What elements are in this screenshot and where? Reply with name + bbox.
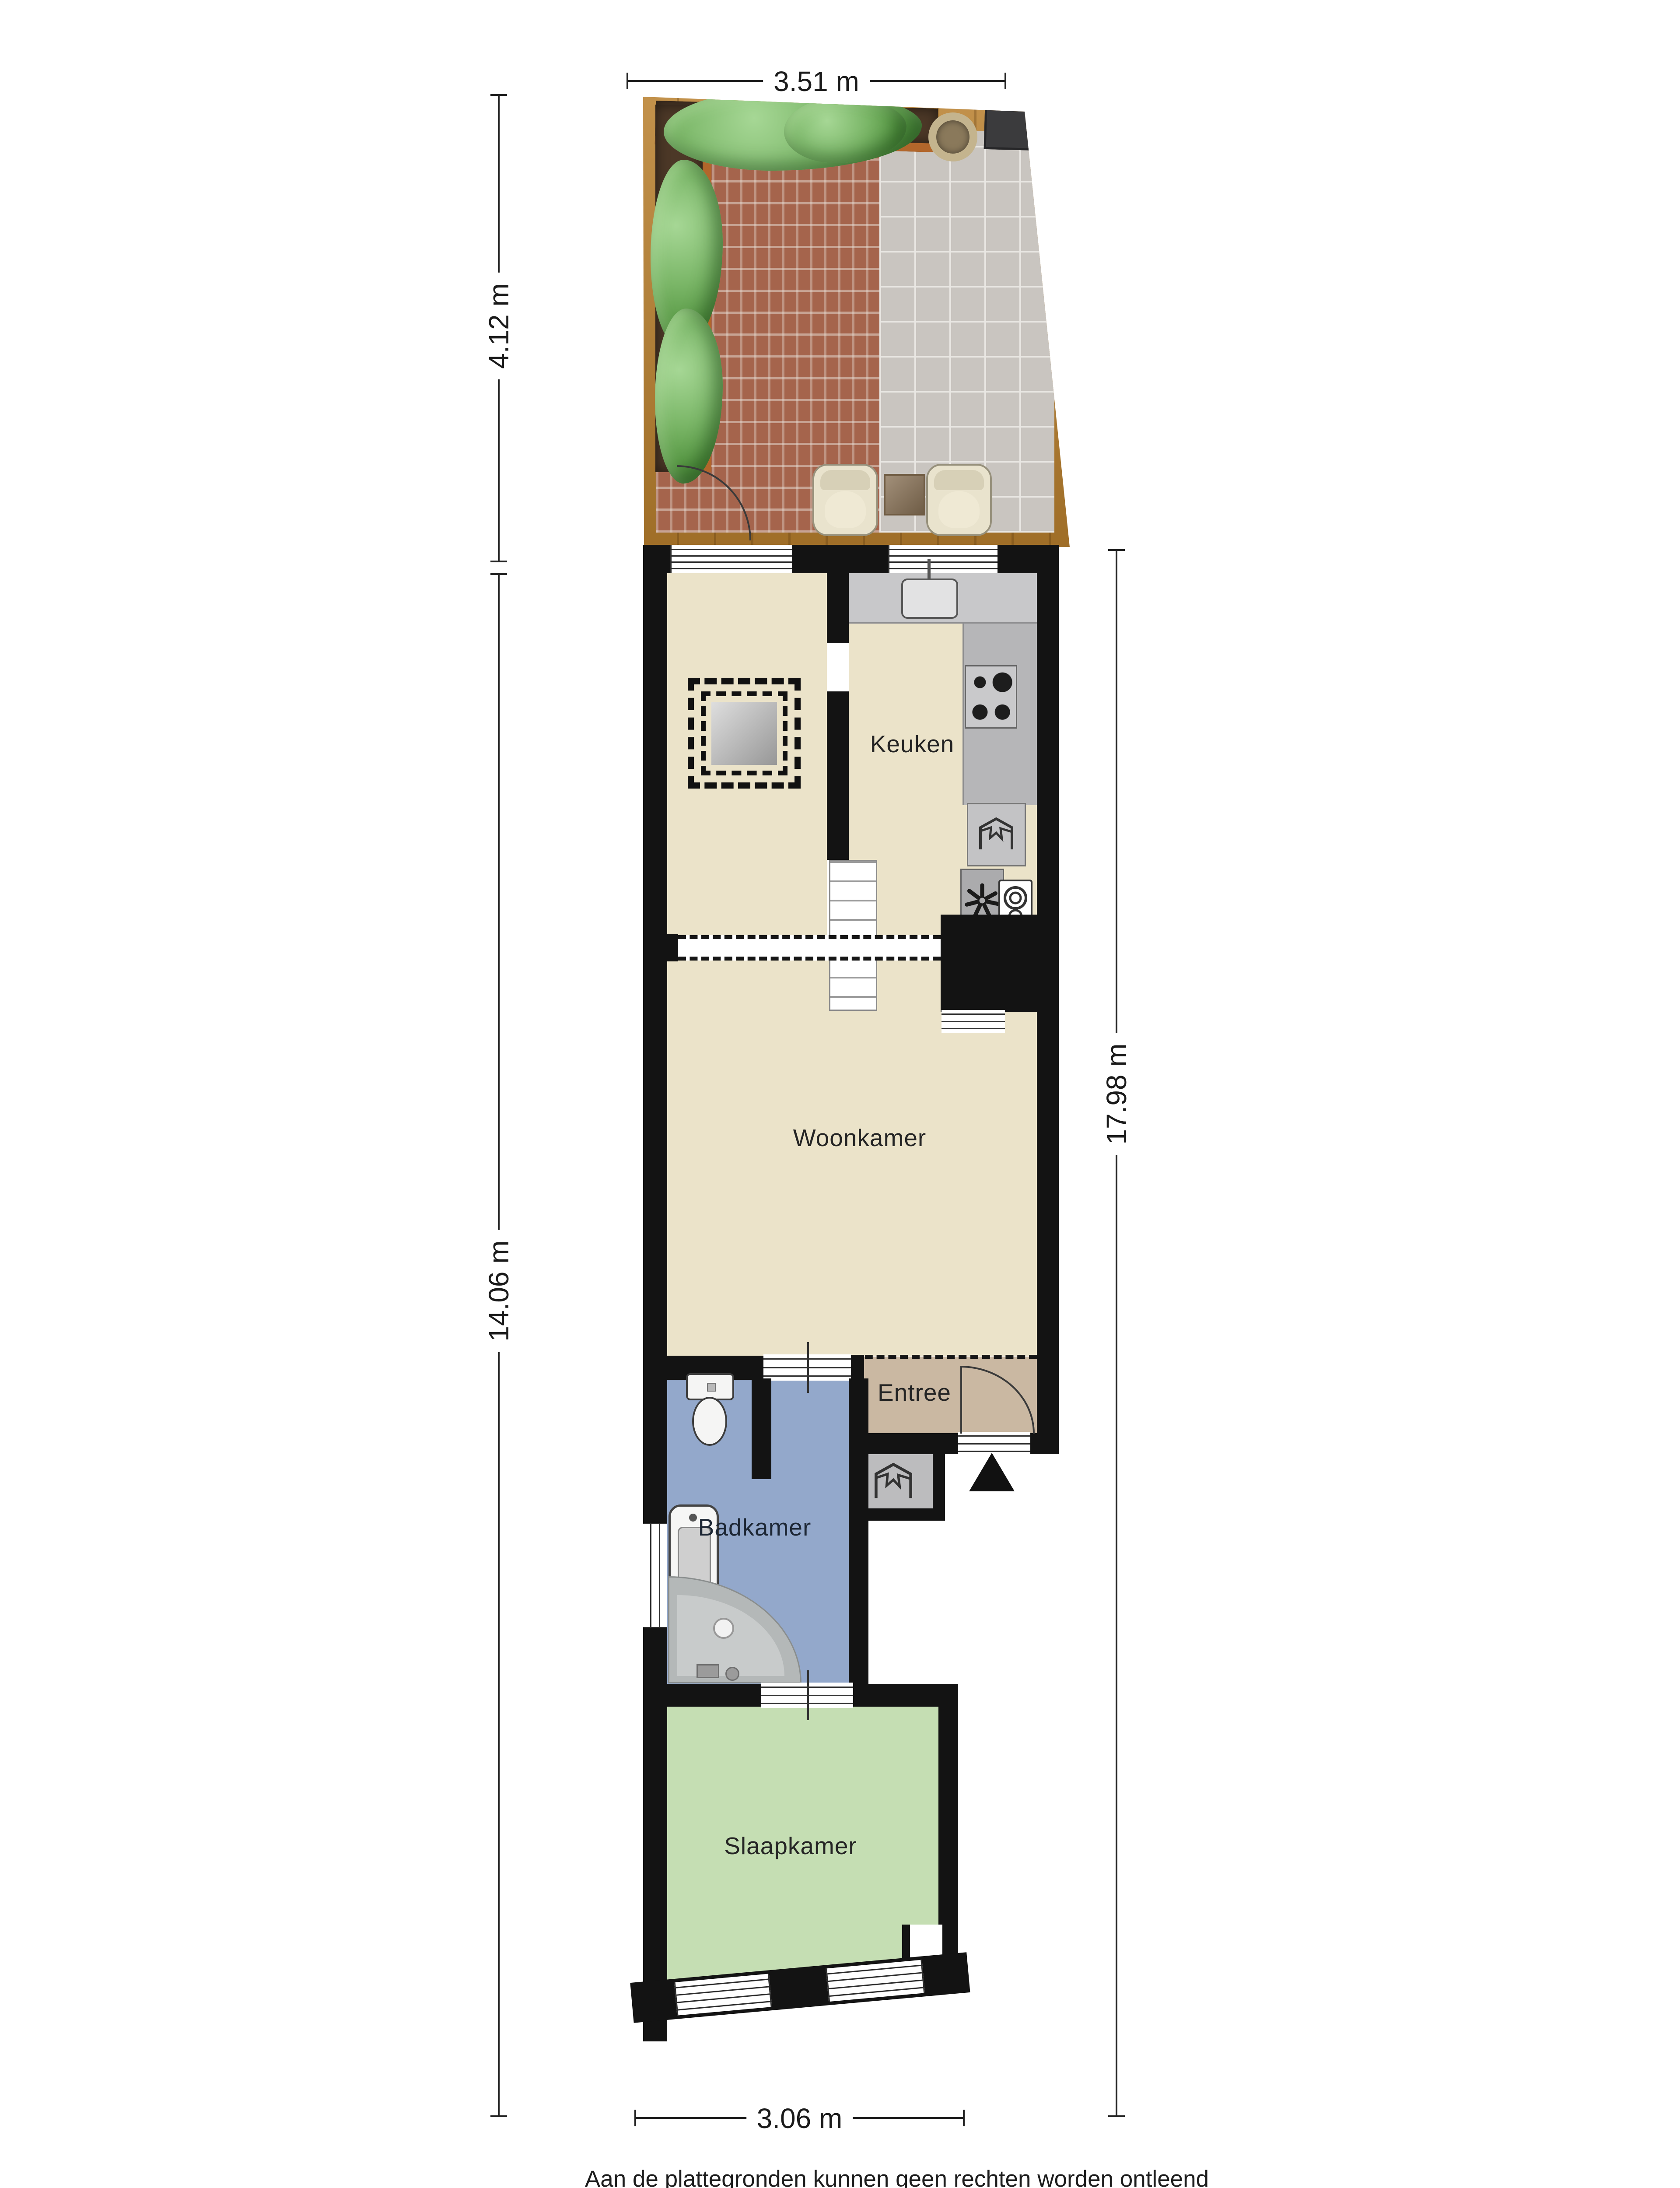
- interior-wall: [827, 691, 849, 860]
- dimension-top-label: 3.51 m: [763, 65, 870, 98]
- window: [888, 545, 1000, 573]
- garden-chair: [926, 464, 992, 536]
- door-opening: [941, 1010, 1005, 1033]
- dimension-house-right-label: 17.98 m: [1100, 1033, 1133, 1155]
- footer-disclaimer: Aan de plattegronden kunnen geen rechten…: [542, 2167, 1251, 2188]
- door-opening: [827, 643, 849, 691]
- stove: [965, 665, 1017, 729]
- dimension-garden-left-line: 4.12 m: [498, 94, 500, 562]
- dimension-top-line: 3.51 m: [626, 80, 1006, 82]
- interior-wall: [849, 1378, 868, 1685]
- room-label-entree: Entree: [849, 1378, 980, 1406]
- exterior-wall: [643, 545, 667, 2041]
- vide-opening-icon: [688, 678, 801, 789]
- shower-drain-icon: [713, 1618, 734, 1639]
- dimension-house-right-line: 17.98 m: [1116, 549, 1117, 2117]
- footer: Aan de plattegronden kunnen geen rechten…: [542, 2167, 1251, 2188]
- door-opening: [763, 1354, 851, 1381]
- plant-pot: [928, 112, 977, 161]
- window: [643, 1523, 667, 1628]
- closet: [855, 1442, 945, 1521]
- window: [670, 545, 794, 573]
- kitchen-cabinet: [967, 803, 1026, 866]
- dimension-garden-left-label: 4.12 m: [483, 273, 515, 379]
- door-opening: [761, 1683, 853, 1708]
- kitchen-sink: [901, 579, 958, 619]
- exterior-wall: [792, 545, 888, 573]
- wardrobe-icon: [974, 810, 1018, 859]
- open-connection: [678, 935, 941, 961]
- front-door-threshold: [958, 1432, 1030, 1455]
- room-label-keuken: Keuken: [847, 730, 978, 758]
- garden-side-table: [884, 474, 925, 515]
- toilet: [686, 1373, 734, 1448]
- entree-boundary-dashed: [853, 1355, 1037, 1359]
- dimension-bottom-line: 3.06 m: [634, 2117, 965, 2119]
- room-label-badkamer: Badkamer: [667, 1513, 842, 1541]
- interior-wall: [827, 573, 849, 643]
- garden-chair: [812, 464, 878, 536]
- garden-storage-box: [984, 105, 1055, 151]
- faucet-icon: [927, 559, 931, 580]
- interior-wall: [752, 1378, 771, 1479]
- room-label-woonkamer: Woonkamer: [750, 1124, 969, 1152]
- garden: [640, 90, 1071, 549]
- dimension-house-left-label: 14.06 m: [483, 1230, 515, 1352]
- interior-wall: [643, 934, 678, 961]
- floorplan-canvas: Keuken Woonkamer Entree Badkamer Slaapka…: [0, 0, 1680, 2188]
- room-label-slaapkamer: Slaapkamer: [681, 1832, 900, 1860]
- entrance-arrow-icon: [969, 1453, 1015, 1491]
- interior-wall: [941, 915, 1059, 1012]
- wardrobe-icon: [869, 1458, 917, 1506]
- dimension-house-left-line: 14.06 m: [498, 573, 500, 2117]
- dimension-bottom-label: 3.06 m: [746, 2102, 853, 2135]
